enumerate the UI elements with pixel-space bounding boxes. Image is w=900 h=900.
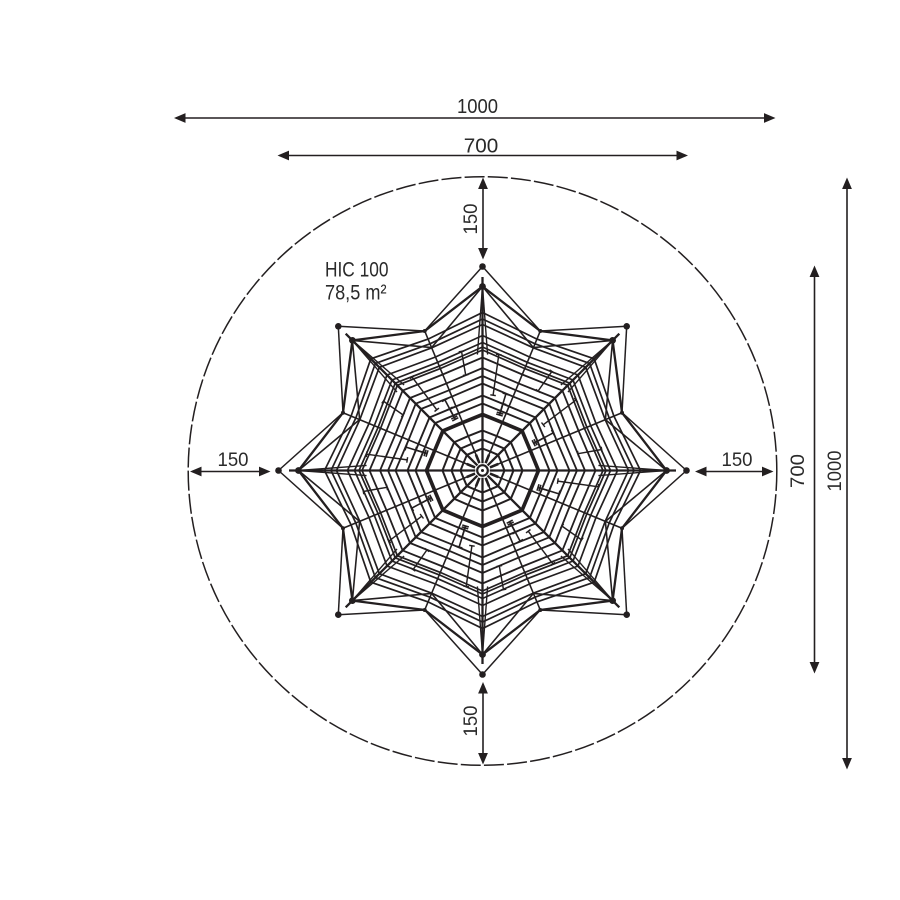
svg-text:700: 700 xyxy=(787,454,809,488)
svg-text:150: 150 xyxy=(461,204,482,235)
svg-text:700: 700 xyxy=(464,136,499,158)
svg-text:1000: 1000 xyxy=(824,450,846,491)
svg-text:150: 150 xyxy=(722,450,753,471)
svg-text:150: 150 xyxy=(461,706,482,737)
svg-text:HIC 100: HIC 100 xyxy=(325,259,389,282)
svg-text:150: 150 xyxy=(218,450,249,471)
svg-text:1000: 1000 xyxy=(457,96,498,118)
svg-text:78,5 m²: 78,5 m² xyxy=(325,282,387,305)
